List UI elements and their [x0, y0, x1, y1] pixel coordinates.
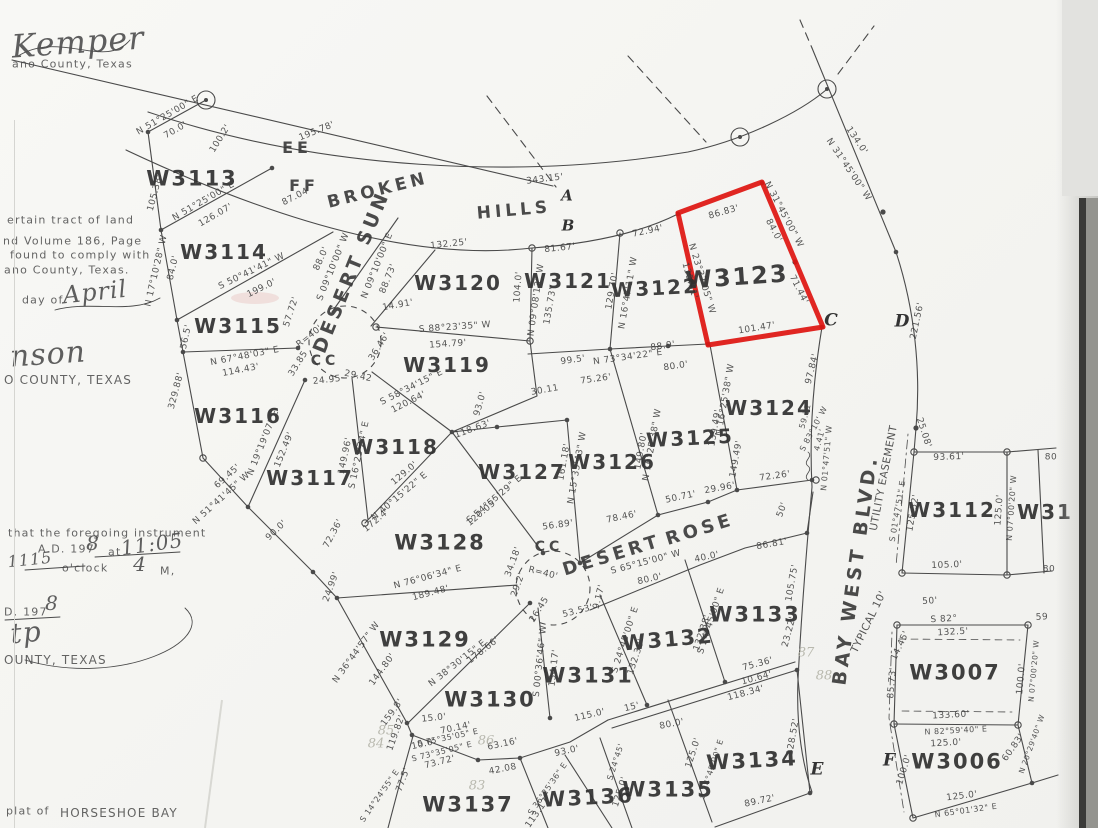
scan-edge-left — [14, 120, 15, 828]
monument-circle — [197, 80, 1031, 821]
paper-crease — [205, 700, 222, 828]
scan-edge-gray-strip — [1086, 198, 1098, 828]
survey-lines — [5, 20, 1058, 828]
scan-edge-dark-strip — [1079, 198, 1086, 828]
scan-edge-top-right — [1062, 0, 1098, 196]
plat-linework — [0, 0, 1098, 828]
plat-map-scan: ano County, Texasertain tract of landnd … — [0, 0, 1098, 828]
stamp-smudge — [231, 292, 279, 304]
vertex-dots — [146, 87, 1035, 795]
highlighted-lot-outline-w3123 — [678, 182, 823, 345]
